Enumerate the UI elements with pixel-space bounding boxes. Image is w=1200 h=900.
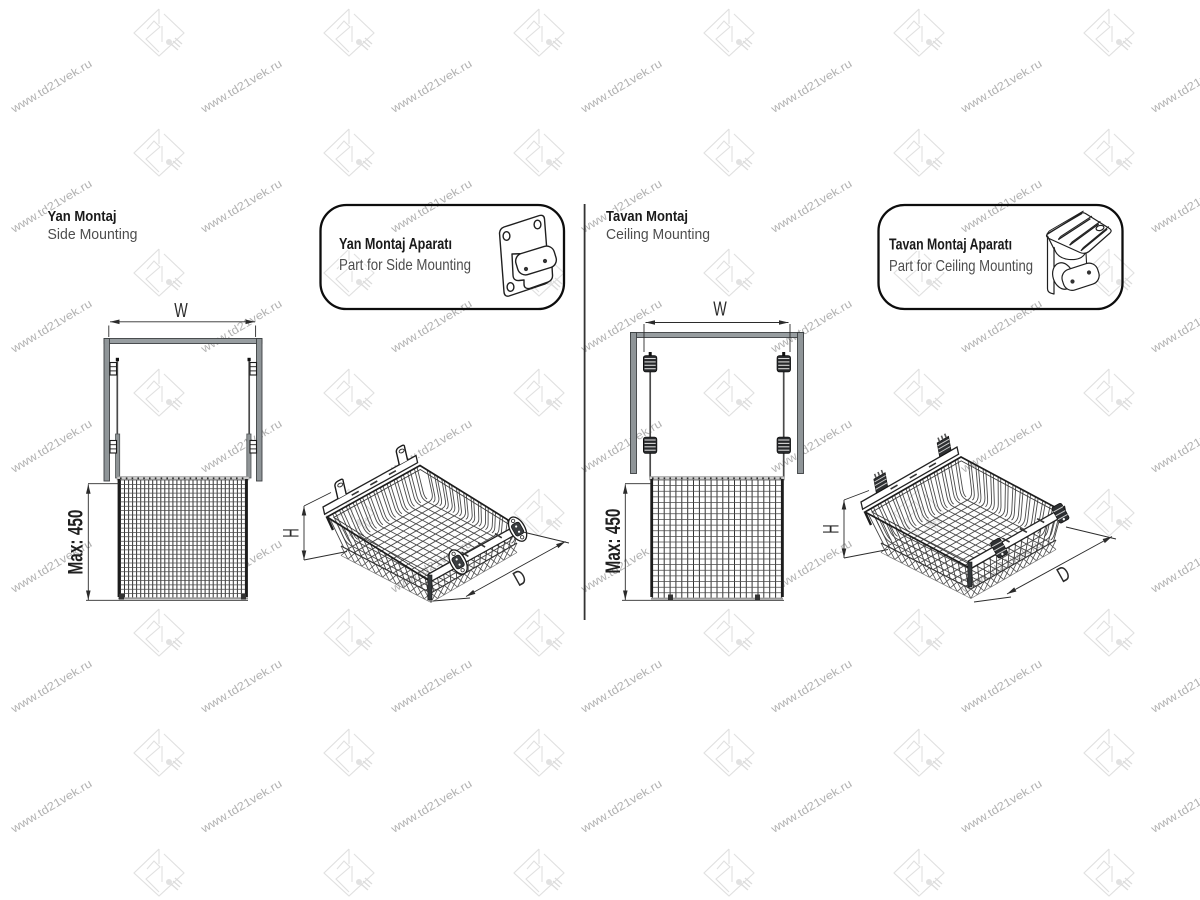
svg-text:Tavan Montaj: Tavan Montaj xyxy=(606,208,688,225)
svg-text:W: W xyxy=(713,298,727,321)
svg-text:Tavan Montaj Aparatı: Tavan Montaj Aparatı xyxy=(889,237,1012,254)
svg-text:Max: 450: Max: 450 xyxy=(64,509,88,574)
svg-text:D: D xyxy=(1053,561,1074,587)
svg-text:Side Mounting: Side Mounting xyxy=(48,226,138,243)
svg-text:Part for Ceiling Mounting: Part for Ceiling Mounting xyxy=(889,258,1033,275)
svg-text:W: W xyxy=(174,299,188,322)
svg-text:H: H xyxy=(818,524,843,534)
svg-text:Max: 450: Max: 450 xyxy=(601,508,625,573)
svg-text:D: D xyxy=(509,565,530,591)
svg-text:H: H xyxy=(278,528,303,538)
svg-text:Yan Montaj Aparatı: Yan Montaj Aparatı xyxy=(339,236,452,253)
svg-text:Part for Side Mounting: Part for Side Mounting xyxy=(339,257,471,274)
svg-text:Yan Montaj: Yan Montaj xyxy=(48,208,117,225)
svg-text:Ceiling Mounting: Ceiling Mounting xyxy=(606,226,710,243)
